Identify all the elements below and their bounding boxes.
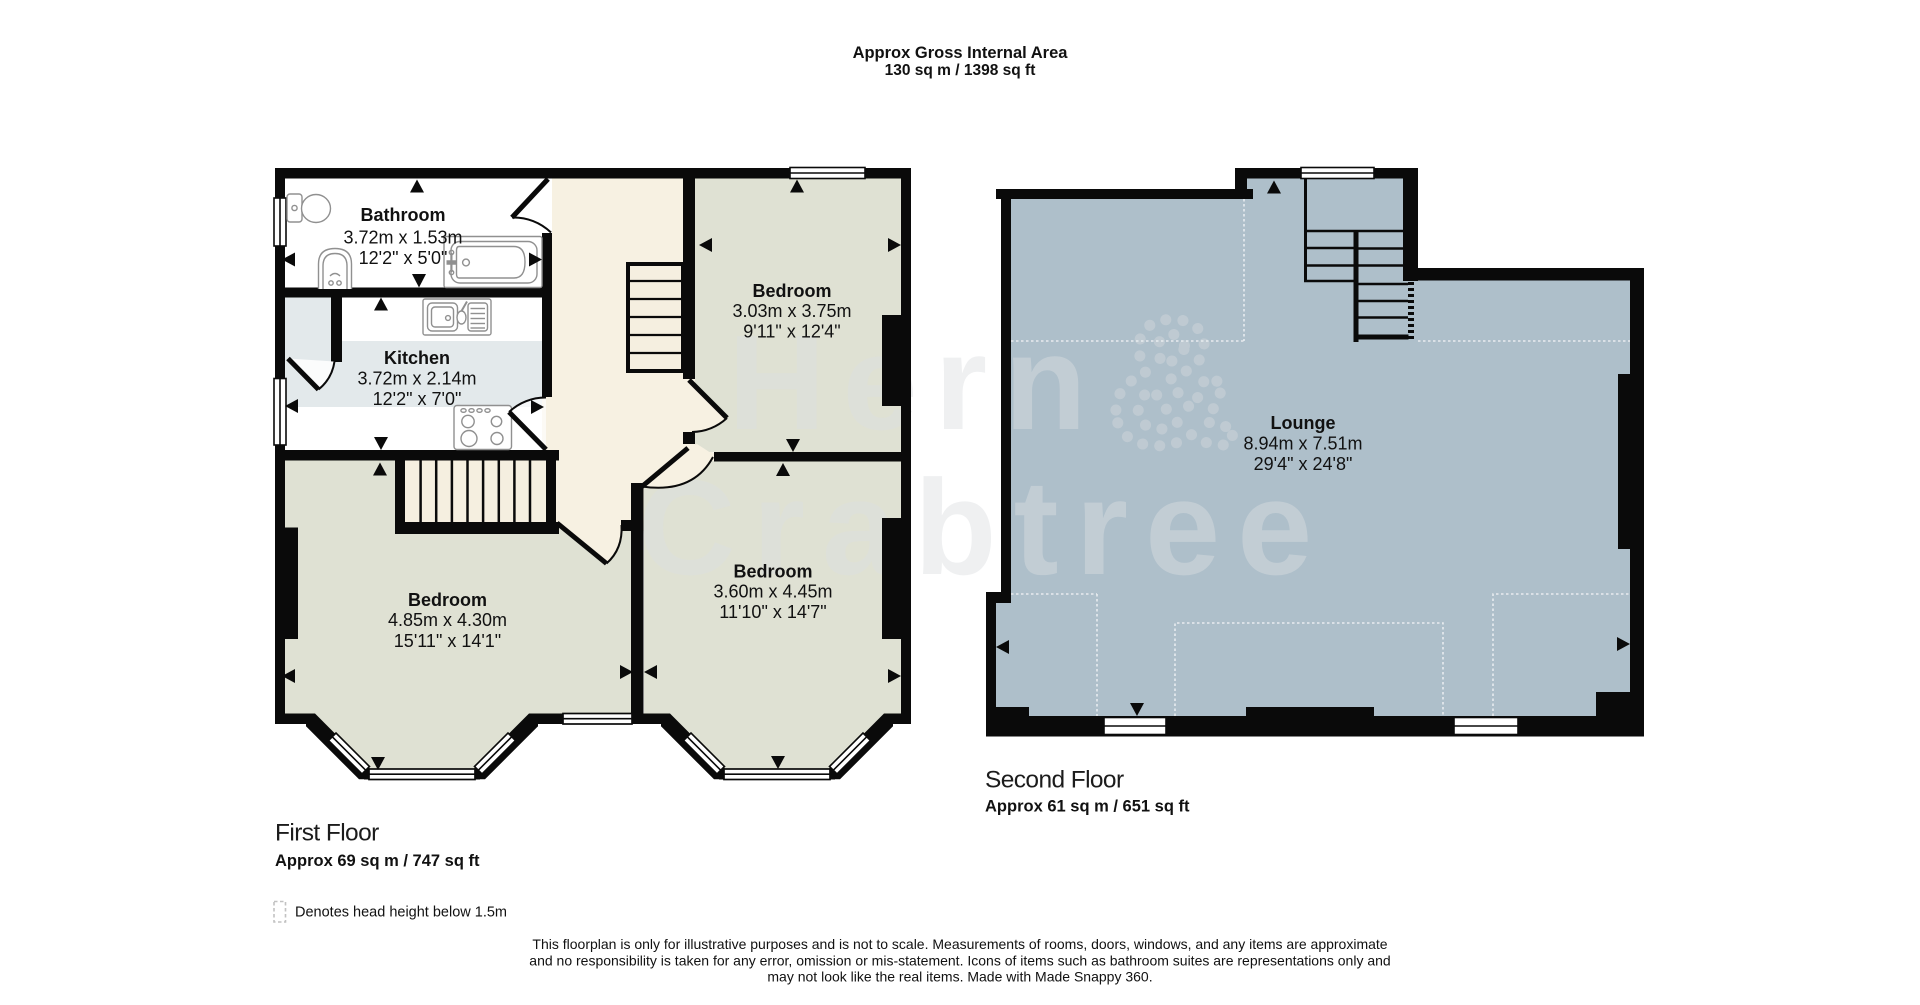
svg-text:Second Floor: Second Floor	[985, 767, 1124, 794]
svg-text:Bedroom: Bedroom	[752, 281, 831, 301]
svg-text:3.03m x 3.75m: 3.03m x 3.75m	[732, 301, 851, 321]
svg-text:11'10" x 14'7": 11'10" x 14'7"	[719, 602, 826, 622]
svg-text:8.94m x 7.51m: 8.94m x 7.51m	[1243, 434, 1362, 454]
svg-text:may not look like the real ite: may not look like the real items. Made w…	[767, 969, 1152, 985]
svg-text:12'2" x 7'0": 12'2" x 7'0"	[373, 389, 462, 409]
svg-text:Bedroom: Bedroom	[733, 562, 812, 582]
svg-text:15'11" x 14'1": 15'11" x 14'1"	[394, 631, 501, 651]
svg-text:4.85m x 4.30m: 4.85m x 4.30m	[388, 610, 507, 630]
svg-text:Approx 61 sq m / 651 sq ft: Approx 61 sq m / 651 sq ft	[985, 798, 1190, 816]
svg-text:130 sq m / 1398 sq ft: 130 sq m / 1398 sq ft	[885, 62, 1036, 79]
svg-text:9'11" x 12'4": 9'11" x 12'4"	[743, 322, 840, 342]
svg-text:Approx 69 sq m / 747 sq ft: Approx 69 sq m / 747 sq ft	[275, 852, 480, 870]
svg-text:Lounge: Lounge	[1271, 413, 1336, 433]
svg-text:Denotes head height below 1.5m: Denotes head height below 1.5m	[295, 905, 507, 921]
svg-text:and no responsibility is taken: and no responsibility is taken for any e…	[529, 953, 1390, 969]
svg-text:3.60m x 4.45m: 3.60m x 4.45m	[713, 582, 832, 602]
svg-text:Kitchen: Kitchen	[384, 348, 450, 368]
svg-text:29'4" x 24'8": 29'4" x 24'8"	[1254, 454, 1353, 474]
svg-text:3.72m x 1.53m: 3.72m x 1.53m	[343, 228, 462, 248]
svg-text:3.72m x 2.14m: 3.72m x 2.14m	[357, 369, 476, 389]
svg-text:This floorplan is only for ill: This floorplan is only for illustrative …	[532, 936, 1387, 952]
svg-text:Bathroom: Bathroom	[361, 205, 446, 225]
svg-text:First Floor: First Floor	[275, 820, 379, 847]
svg-text:Approx Gross Internal Area: Approx Gross Internal Area	[853, 44, 1069, 62]
svg-text:Bedroom: Bedroom	[408, 590, 487, 610]
svg-text:12'2" x 5'0": 12'2" x 5'0"	[359, 248, 448, 268]
